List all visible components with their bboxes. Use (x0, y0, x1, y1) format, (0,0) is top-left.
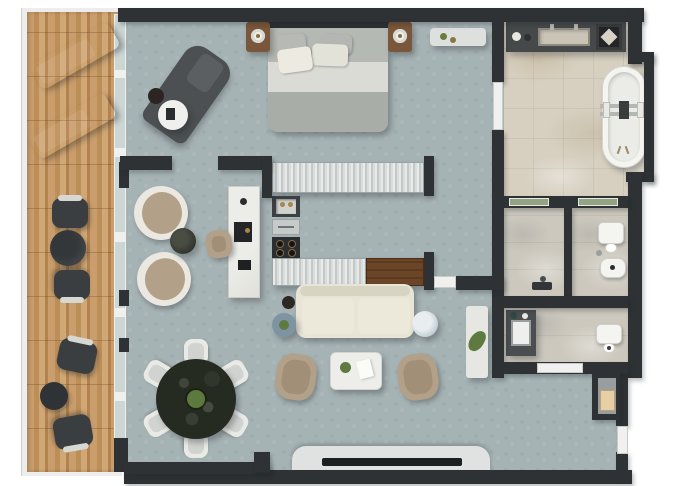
coffee-table (330, 352, 382, 390)
niche-cabinet (600, 390, 615, 411)
vanity-faucet (574, 24, 578, 30)
wall-nub (119, 290, 129, 306)
vanity-accessory (512, 32, 521, 41)
burner (288, 240, 296, 248)
burner (288, 249, 296, 257)
kitchen-sink-basin (276, 199, 296, 214)
glass-mullion (114, 232, 126, 242)
glass-mullion (114, 308, 126, 317)
side-table-white (412, 311, 438, 337)
toilet-bowl (605, 243, 617, 253)
laundry-door-threshold (537, 363, 583, 373)
lamp-finial (398, 34, 402, 38)
shower-head (540, 276, 546, 282)
laundry-accessory (522, 313, 528, 319)
burner (276, 240, 284, 248)
table-decor (166, 108, 175, 120)
island-tray (238, 260, 251, 270)
kitchen-wall-right-top (424, 156, 434, 196)
coffee-table-plant (340, 362, 351, 373)
guest-toilet (596, 324, 622, 344)
tub-handle (637, 102, 644, 118)
entry-door (617, 426, 628, 454)
bathroom-door (493, 82, 503, 130)
wall-bed-bath-lower (492, 130, 504, 196)
sofa-cushion (358, 298, 410, 334)
toilet (598, 222, 624, 244)
sitting-side-table (170, 228, 196, 254)
shower-fixture (532, 282, 552, 290)
laundry-accessory (510, 312, 517, 319)
kitchen-faucet (288, 202, 293, 207)
pillow (312, 43, 349, 66)
sofa-cushion (302, 298, 354, 334)
wall-alcove-right (644, 52, 654, 182)
kitchen-wall-left (262, 156, 272, 198)
wall-top (118, 8, 644, 22)
guest-toilet-dot (607, 346, 611, 350)
wall-shower-wc (564, 208, 572, 298)
vanity-accessory (524, 34, 531, 41)
sofa-tray-dark (282, 296, 295, 309)
floor-drain (596, 250, 602, 256)
wall-corridor-south (456, 276, 504, 290)
drawer-handle (278, 226, 294, 228)
wc-glass-door (578, 198, 618, 206)
floor-plate (148, 88, 164, 104)
wall-bottom-step (254, 452, 270, 472)
plant-on-table (279, 320, 289, 330)
espresso-knob (245, 228, 250, 233)
bench-decor (450, 37, 456, 43)
floor-plan-canvas (0, 0, 680, 486)
bistro-table (50, 230, 86, 266)
bidet-drain (610, 265, 615, 270)
glass-mullion (114, 392, 126, 401)
wall-bed-bath-upper (492, 20, 504, 82)
bench-decor (440, 33, 447, 40)
sofa-back (300, 286, 410, 296)
wall-rooms-bottom (504, 296, 628, 308)
patio-side-table (40, 382, 68, 410)
divider-west (120, 156, 172, 170)
shower-glass-door (509, 198, 549, 206)
vanity-trough-sink (538, 28, 590, 46)
wall-nub (119, 338, 129, 352)
television (322, 458, 462, 466)
counter-wood-section (366, 258, 424, 286)
glass-mullion (114, 70, 126, 78)
living-corridor-threshold (434, 276, 456, 288)
patio-chair (52, 413, 95, 451)
vanity-faucet (550, 24, 554, 30)
bedroom-bench (430, 28, 486, 46)
tub-handle (603, 102, 610, 118)
wall-bottom-left-thick (124, 462, 270, 474)
kitchen-wall-right-bottom (424, 252, 434, 290)
dining-centerpiece-plant (187, 390, 205, 408)
pillow (276, 46, 313, 74)
laundry-sink (511, 320, 531, 346)
bistro-chair (52, 198, 88, 228)
bistro-chair (54, 270, 90, 300)
lamp-finial (256, 34, 260, 38)
wall-right-mid (628, 172, 642, 378)
kitchen-faucet (280, 202, 285, 207)
tub-faucet-body (619, 101, 629, 119)
burner (276, 249, 284, 257)
kitchen-counter-top (272, 162, 424, 193)
island-cup (240, 198, 247, 205)
kitchen-counter-bottom (272, 258, 366, 286)
